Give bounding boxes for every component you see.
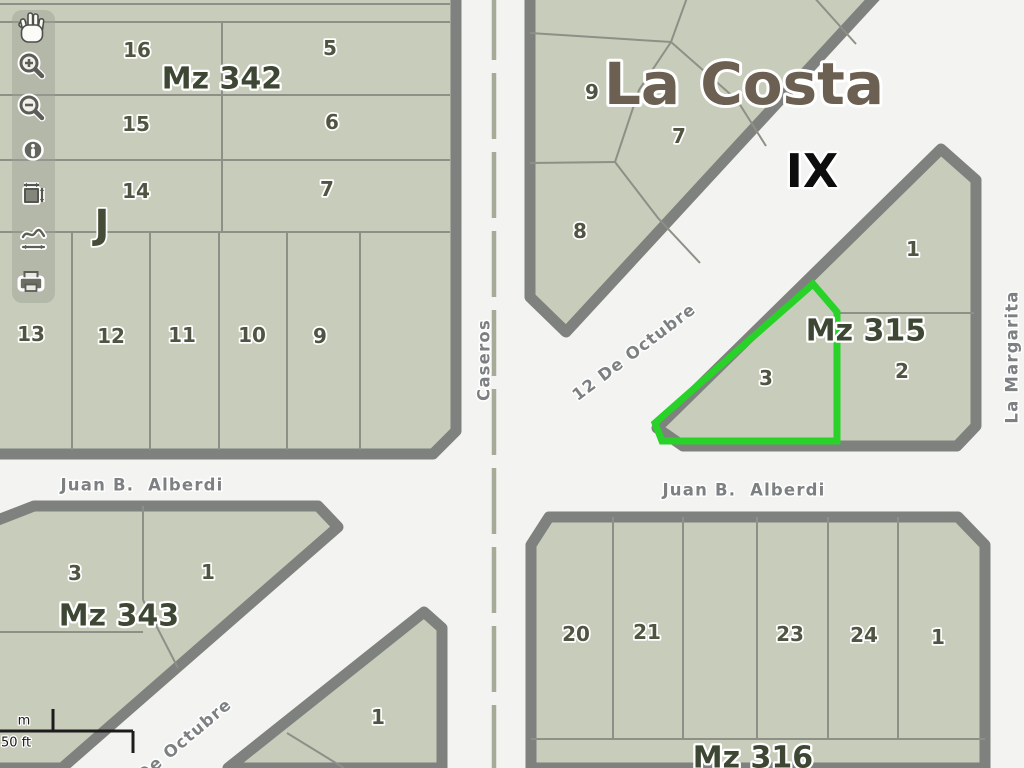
section-marker: J <box>92 202 110 248</box>
street-label-caseros: Caseros <box>475 319 494 401</box>
parcel-label[interactable]: 9 <box>585 80 599 104</box>
parcel-label[interactable]: 1 <box>201 560 215 584</box>
street-label-la-margarita: La Margarita <box>1003 290 1022 423</box>
parcel-label[interactable]: 1 <box>931 625 945 649</box>
parcel-label[interactable]: 7 <box>672 124 686 148</box>
parcel-label[interactable]: 1 <box>906 237 920 261</box>
block-label-mz315: Mz 315 <box>806 314 926 349</box>
parcel-label[interactable]: 24 <box>850 623 878 647</box>
parcel-label[interactable]: 9 <box>313 324 327 348</box>
street-label-alberdi-east: Juan B. Alberdi <box>661 481 825 500</box>
parcel-label[interactable]: 3 <box>68 561 82 585</box>
parcel-label[interactable]: 10 <box>238 323 266 347</box>
parcel-label[interactable]: 20 <box>562 622 590 646</box>
parcel-label[interactable]: 7 <box>320 177 334 201</box>
street-label-alberdi-west: Juan B. Alberdi <box>59 476 223 495</box>
zoom-in-button[interactable] <box>21 55 42 76</box>
zoom-out-icon <box>21 97 42 118</box>
parcel-label-highlighted[interactable]: 3 <box>759 366 773 390</box>
map-canvas[interactable]: 16 5 15 6 14 7 13 12 11 10 9 Mz 342 J 9 … <box>0 0 1024 768</box>
parcel-label[interactable]: 14 <box>122 179 150 203</box>
parcel-label[interactable]: 12 <box>97 324 125 348</box>
parcel-label[interactable]: 21 <box>633 620 661 644</box>
parcel-label[interactable]: 8 <box>573 219 587 243</box>
parcel-label[interactable]: 15 <box>122 112 150 136</box>
block-label-mz342: Mz 342 <box>162 62 282 97</box>
region-title: La Costa <box>604 50 884 118</box>
parcel-label[interactable]: 23 <box>776 622 804 646</box>
zoom-out-button[interactable] <box>21 97 42 118</box>
identify-button[interactable] <box>24 141 43 160</box>
scale-imperial-label: 50 ft <box>1 736 31 751</box>
map-toolbar <box>12 10 55 303</box>
parcel-label[interactable]: 6 <box>325 110 339 134</box>
zoom-in-icon <box>21 55 42 76</box>
block-label-mz343: Mz 343 <box>59 599 179 634</box>
scale-metric-label: m <box>18 714 31 729</box>
zone-label: IX <box>786 144 839 198</box>
parcel-label[interactable]: 5 <box>323 36 337 60</box>
block-label-mz316: Mz 316 <box>693 741 813 768</box>
parcel-label[interactable]: 13 <box>17 322 45 346</box>
parcel-label[interactable]: 16 <box>123 38 151 62</box>
parcel-label[interactable]: 1 <box>371 705 385 729</box>
info-icon <box>24 141 43 160</box>
parcel-label[interactable]: 2 <box>895 359 909 383</box>
parcel-label[interactable]: 11 <box>168 323 196 347</box>
